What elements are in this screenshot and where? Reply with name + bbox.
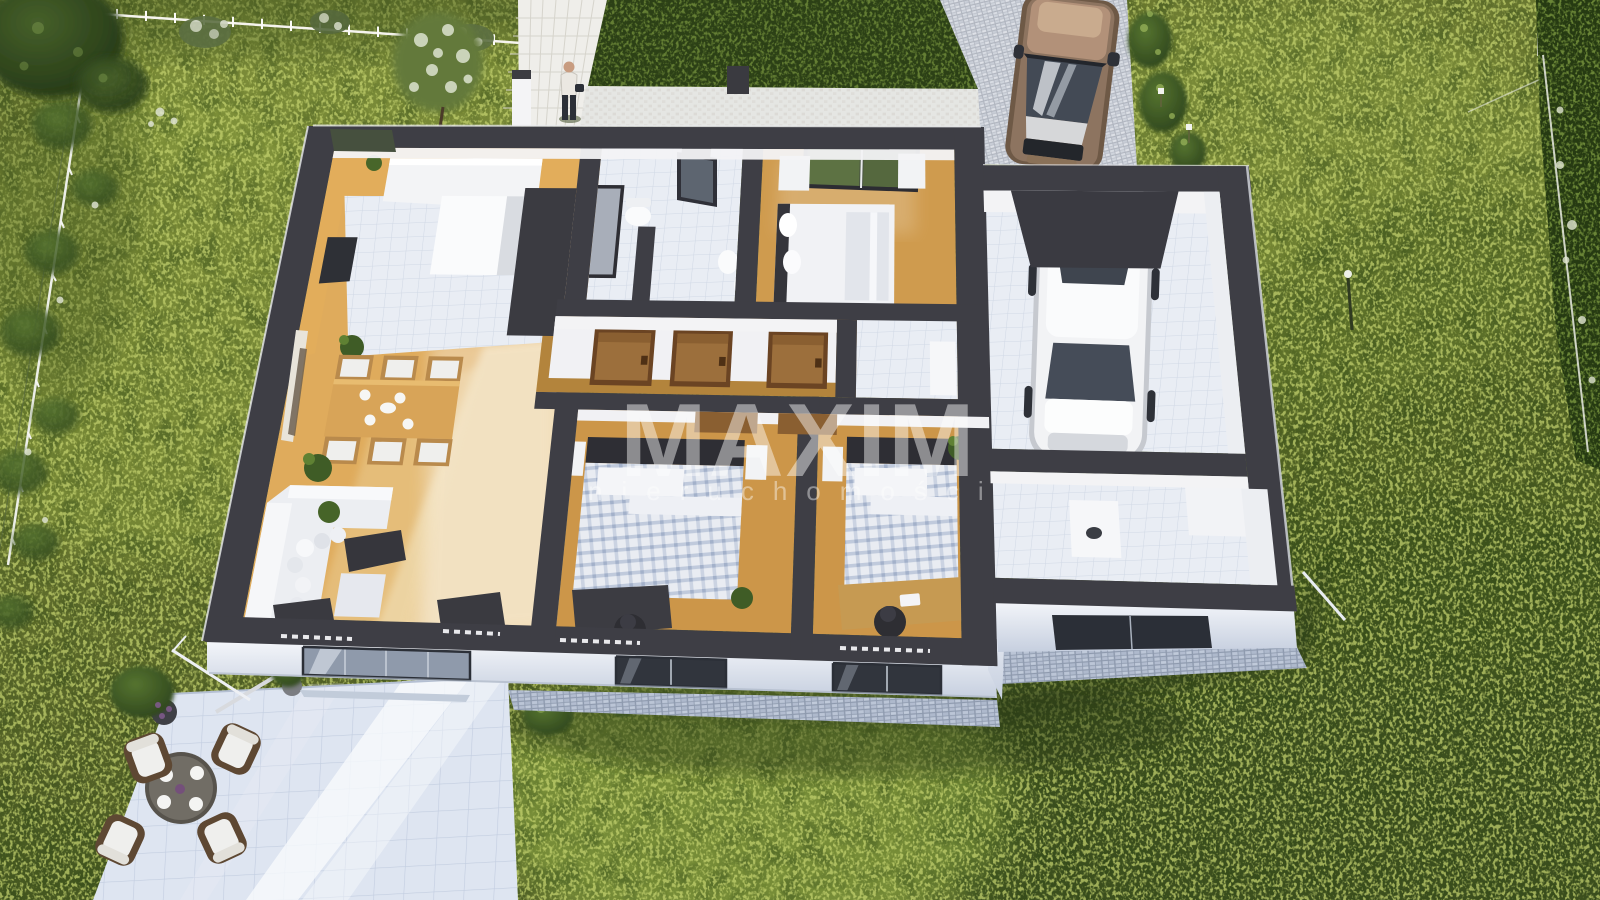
svg-text:nieruchomości: nieruchomości [588,476,1003,506]
